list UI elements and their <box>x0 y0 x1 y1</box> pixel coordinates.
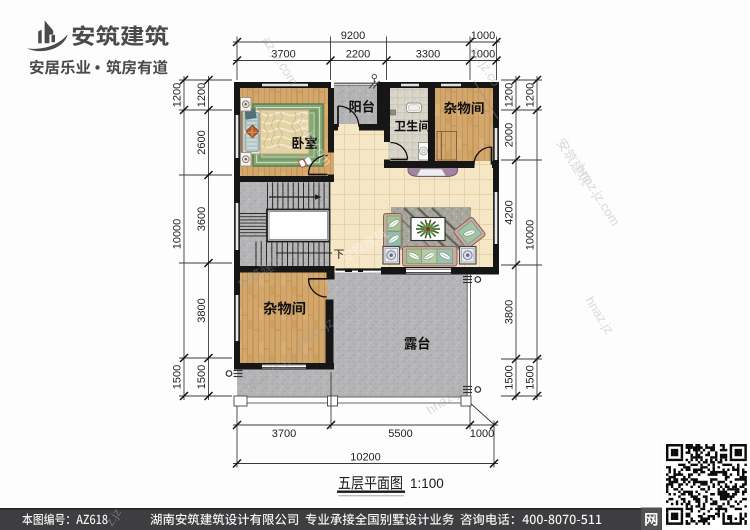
svg-text:1200: 1200 <box>504 83 516 107</box>
svg-text:1:100: 1:100 <box>410 476 444 491</box>
svg-text:10000: 10000 <box>525 220 537 251</box>
svg-text:2200: 2200 <box>346 49 370 61</box>
svg-text:5500: 5500 <box>388 428 412 440</box>
svg-text:3800: 3800 <box>196 298 208 322</box>
svg-text:hnaz.jz: hnaz.jz <box>582 294 617 337</box>
svg-text:1500: 1500 <box>504 365 516 389</box>
svg-text:1500: 1500 <box>172 365 184 389</box>
svg-text:1200: 1200 <box>172 83 184 107</box>
svg-text:3800: 3800 <box>504 300 516 324</box>
svg-text:3300: 3300 <box>416 49 440 61</box>
svg-text:1500: 1500 <box>196 365 208 389</box>
svg-text:4200: 4200 <box>504 200 516 224</box>
svg-text:10200: 10200 <box>350 452 381 464</box>
svg-text:3700: 3700 <box>272 428 296 440</box>
svg-text:hnaz.jz.com: hnaz.jz.com <box>573 162 622 229</box>
svg-text:9200: 9200 <box>341 30 365 42</box>
svg-text:1000: 1000 <box>470 428 494 440</box>
svg-text:1500: 1500 <box>525 365 537 389</box>
svg-text:10000: 10000 <box>172 219 184 250</box>
svg-text:3600: 3600 <box>196 207 208 231</box>
svg-text:1000: 1000 <box>471 30 495 42</box>
svg-text:2600: 2600 <box>196 130 208 154</box>
svg-text:1200: 1200 <box>196 83 208 107</box>
svg-text:2000: 2000 <box>504 123 516 147</box>
svg-text:1200: 1200 <box>525 83 537 107</box>
